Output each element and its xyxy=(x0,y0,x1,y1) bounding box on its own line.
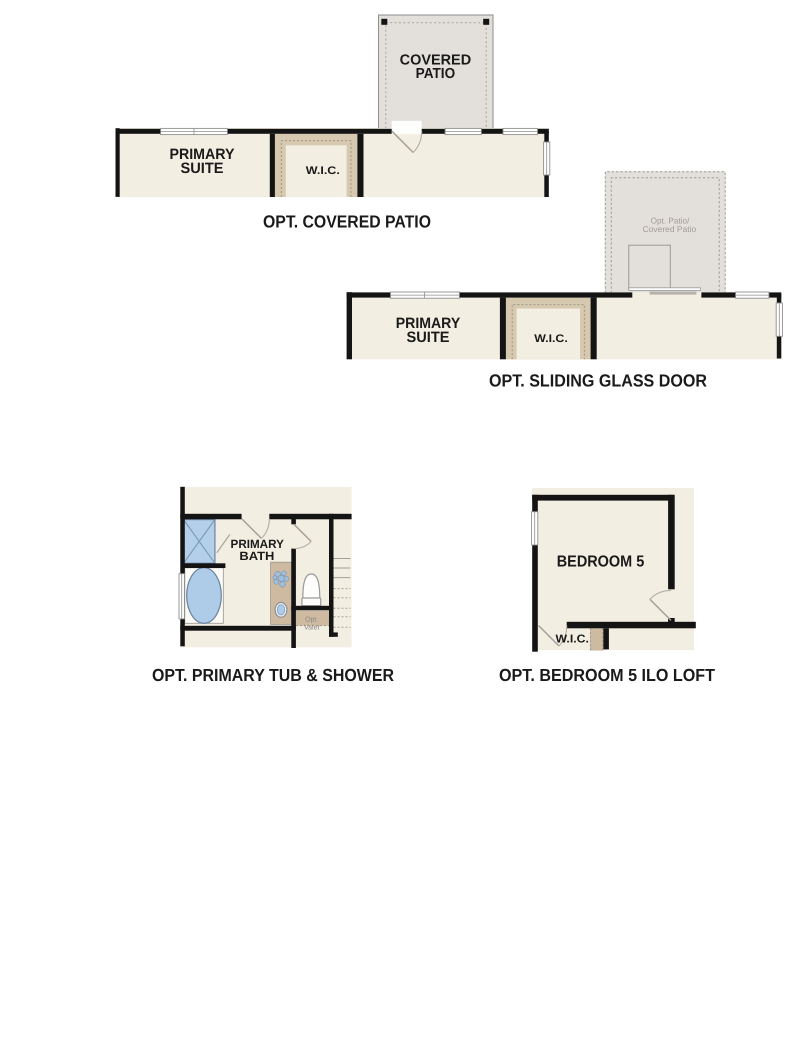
svg-text:BEDROOM 5: BEDROOM 5 xyxy=(557,553,645,570)
svg-text:OPT. SLIDING GLASS DOOR: OPT. SLIDING GLASS DOOR xyxy=(489,370,707,390)
svg-text:OPT. COVERED PATIO: OPT. COVERED PATIO xyxy=(263,211,431,231)
svg-text:Covered Patio: Covered Patio xyxy=(643,224,697,234)
svg-text:PATIO: PATIO xyxy=(416,66,456,82)
svg-text:SUITE: SUITE xyxy=(181,160,224,177)
svg-text:BATH: BATH xyxy=(239,549,274,563)
svg-text:Valet: Valet xyxy=(304,623,319,631)
svg-text:Opt.: Opt. xyxy=(305,616,318,623)
svg-text:SUITE: SUITE xyxy=(407,329,450,346)
svg-text:W.I.C.: W.I.C. xyxy=(534,333,568,345)
svg-text:OPT. PRIMARY TUB & SHOWER: OPT. PRIMARY TUB & SHOWER xyxy=(152,665,394,685)
svg-text:OPT. BEDROOM 5 ILO LOFT: OPT. BEDROOM 5 ILO LOFT xyxy=(499,665,715,685)
svg-text:W.I.C.: W.I.C. xyxy=(306,165,340,177)
svg-text:W.I.C.: W.I.C. xyxy=(556,633,589,645)
